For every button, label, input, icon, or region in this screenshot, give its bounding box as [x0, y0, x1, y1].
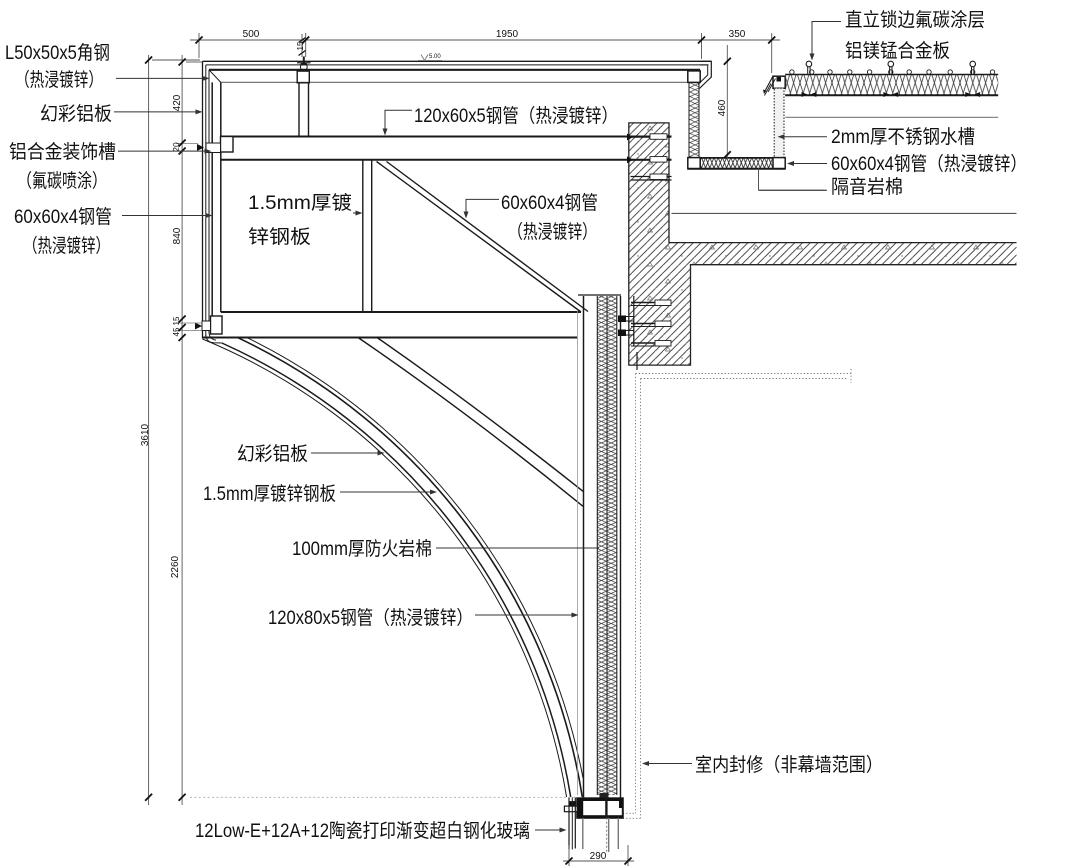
svg-text:2260: 2260	[170, 555, 181, 578]
svg-text:500: 500	[243, 29, 260, 40]
svg-text:15: 15	[296, 41, 305, 50]
svg-text:铝镁锰合金板: 铝镁锰合金板	[845, 40, 950, 62]
svg-text:290: 290	[590, 851, 607, 862]
svg-text:15: 15	[172, 316, 181, 325]
svg-text:420: 420	[172, 94, 183, 111]
svg-text:5.00: 5.00	[429, 54, 441, 60]
svg-text:120x80x5钢管（热浸镀锌）: 120x80x5钢管（热浸镀锌）	[268, 607, 473, 629]
svg-text:（热浸镀锌）: （热浸镀锌）	[15, 69, 103, 91]
svg-text:（热浸镀锌）: （热浸镀锌）	[508, 221, 597, 243]
svg-text:锌钢板: 锌钢板	[248, 226, 311, 248]
svg-text:直立锁边氟碳涂层: 直立锁边氟碳涂层	[845, 9, 985, 31]
svg-text:隔音岩棉: 隔音岩棉	[831, 176, 903, 198]
svg-text:幻彩铝板: 幻彩铝板	[237, 443, 308, 465]
svg-text:840: 840	[172, 227, 183, 244]
svg-text:L50x50x5角钢: L50x50x5角钢	[5, 42, 110, 64]
svg-text:室内封修（非幕墙范围）: 室内封修（非幕墙范围）	[695, 754, 883, 776]
svg-text:1950: 1950	[496, 29, 519, 40]
svg-text:60x60x4钢管（热浸镀锌）: 60x60x4钢管（热浸镀锌）	[831, 153, 1027, 175]
svg-text:460: 460	[717, 99, 728, 116]
svg-text:2mm厚不锈钢水槽: 2mm厚不锈钢水槽	[831, 126, 975, 148]
svg-text:12Low-E+12A+12陶瓷打印渐变超白钢化玻璃: 12Low-E+12A+12陶瓷打印渐变超白钢化玻璃	[195, 820, 530, 842]
svg-text:20: 20	[171, 142, 181, 152]
svg-text:1.5mm厚镀: 1.5mm厚镀	[248, 192, 352, 214]
svg-text:（热浸镀锌）: （热浸镀锌）	[23, 235, 110, 257]
svg-text:45: 45	[172, 327, 181, 336]
svg-text:60x60x4钢管: 60x60x4钢管	[14, 206, 112, 228]
svg-text:铝合金装饰槽: 铝合金装饰槽	[9, 141, 116, 163]
svg-text:（氟碳喷涂）: （氟碳喷涂）	[17, 170, 107, 192]
svg-text:350: 350	[729, 29, 746, 40]
svg-text:120x60x5钢管（热浸镀锌）: 120x60x5钢管（热浸镀锌）	[414, 105, 618, 127]
svg-text:100mm厚防火岩棉: 100mm厚防火岩棉	[292, 538, 432, 560]
svg-text:60x60x4钢管: 60x60x4钢管	[501, 192, 598, 214]
svg-text:3610: 3610	[140, 423, 151, 446]
svg-text:幻彩铝板: 幻彩铝板	[40, 103, 112, 125]
svg-text:1.5mm厚镀锌钢板: 1.5mm厚镀锌钢板	[203, 483, 336, 505]
